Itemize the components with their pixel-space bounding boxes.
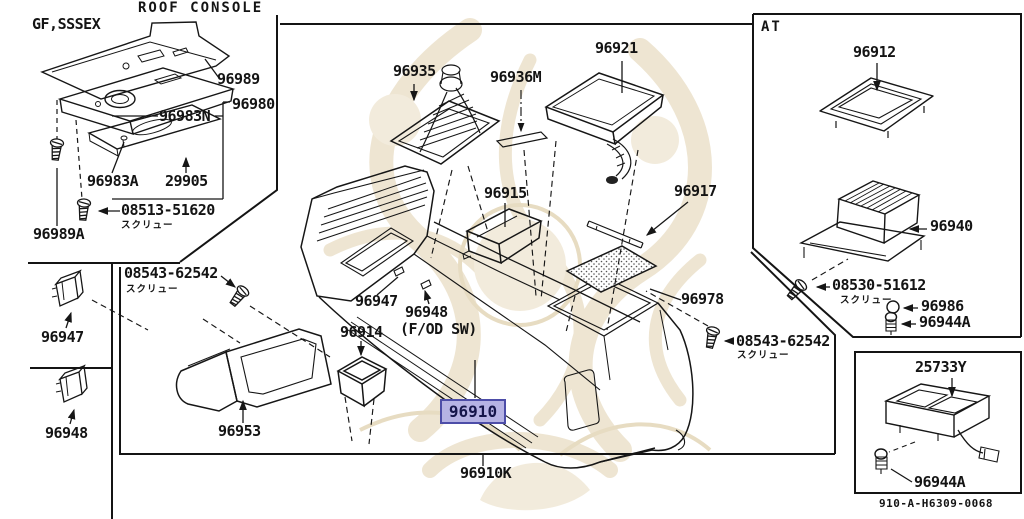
part-label-96983A: 96983A	[87, 174, 138, 190]
part-label-96935: 96935	[393, 64, 436, 80]
part-label-96989: 96989	[217, 72, 260, 88]
roof-console-title: ROOF CONSOLE	[138, 1, 263, 16]
switch-box-drawing	[875, 378, 999, 482]
part-label-96948-left: 96948	[45, 426, 88, 442]
part-label-96910-highlighted[interactable]: 96910	[440, 399, 506, 424]
at-section-label: AT	[761, 20, 782, 35]
part-label-96915: 96915	[484, 186, 527, 202]
part-label-96914: 96914	[340, 325, 383, 341]
part-label-96980: 96980	[232, 97, 275, 113]
part-label-25733Y: 25733Y	[915, 360, 966, 376]
part-label-96912: 96912	[853, 45, 896, 61]
part-label-96921: 96921	[595, 41, 638, 57]
part-label-96936M: 96936M	[490, 70, 541, 86]
part-label-96953: 96953	[218, 424, 261, 440]
fod-switch-annotation: (F/OD SW)	[400, 322, 477, 338]
part-label-96940: 96940	[930, 219, 973, 235]
part-label-08543-62542-left: 08543-62542	[124, 266, 218, 282]
diagram-code: 910-A-H6309-0068	[879, 498, 993, 510]
part-label-96944A-right: 96944A	[919, 315, 970, 331]
parts-diagram-page: ROOF CONSOLE GF,SSSEX 96989 96980 96983N…	[0, 0, 1024, 519]
part-label-96947-console: 96947	[355, 294, 398, 310]
part-label-96944A-bottom: 96944A	[914, 475, 965, 491]
part-label-08530-51612: 08530-51612	[832, 278, 926, 294]
part-label-96910K: 96910K	[460, 466, 511, 482]
screw-annotation-right: スクリュー	[737, 351, 790, 361]
screw-annotation-left: スクリュー	[126, 285, 179, 295]
part-label-08543-62542-right: 08543-62542	[736, 334, 830, 350]
part-label-96989A: 96989A	[33, 227, 84, 243]
part-label-96983N: 96983N	[159, 109, 210, 125]
screw-annotation-at: スクリュー	[840, 296, 893, 306]
switch-blank-icons	[52, 271, 87, 424]
part-label-96947-left: 96947	[41, 330, 84, 346]
part-label-08513-51620: 08513-51620	[121, 203, 215, 219]
part-label-96917: 96917	[674, 184, 717, 200]
part-label-96948-console: 96948	[405, 305, 448, 321]
variant-label: GF,SSSEX	[32, 17, 100, 33]
screw-annotation-roof: スクリュー	[121, 221, 174, 231]
part-label-96978: 96978	[681, 292, 724, 308]
part-label-29905: 29905	[165, 174, 208, 190]
